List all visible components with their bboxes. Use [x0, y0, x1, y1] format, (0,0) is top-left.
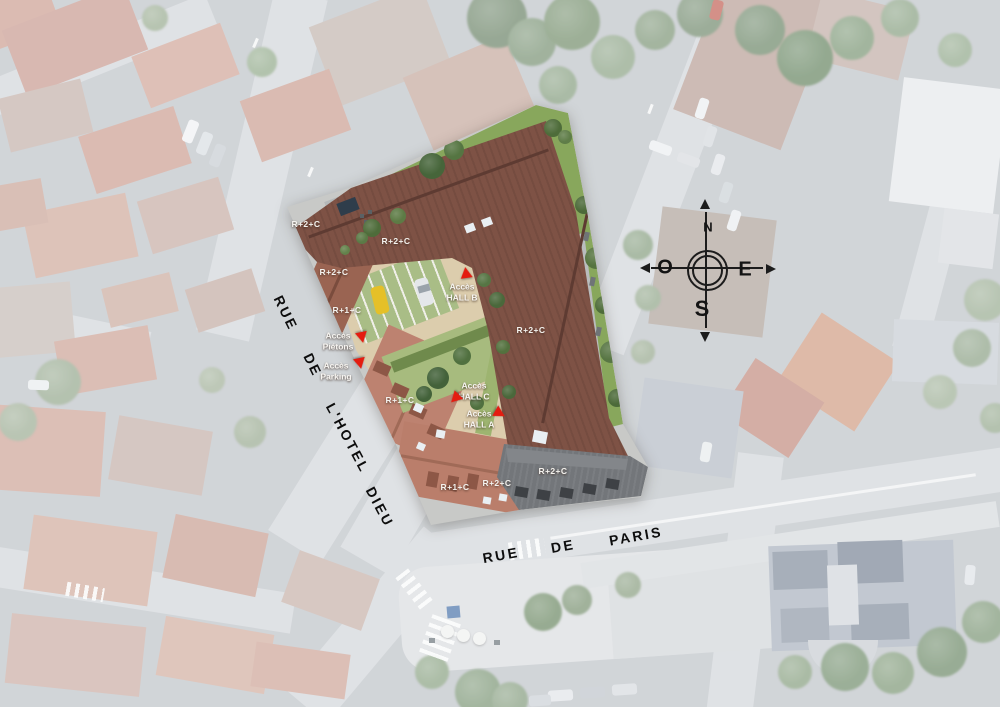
skylight — [464, 222, 476, 233]
compass-north-arrow-icon — [700, 199, 710, 209]
dormer — [465, 473, 478, 490]
site-tree — [416, 386, 432, 402]
site-tree — [489, 292, 505, 308]
site-plan — [0, 0, 1000, 707]
roof-ridge — [541, 161, 599, 424]
site-tree — [419, 153, 445, 179]
aerial-site-plan: RUEDEL'HOTELDIEURUEDEPARISR+2+CR+2+CR+2+… — [0, 0, 1000, 707]
site-tree — [558, 130, 572, 144]
skylight — [498, 493, 507, 501]
canopy — [336, 196, 359, 215]
site-area — [0, 0, 1000, 707]
bench — [589, 276, 596, 286]
skylight — [481, 216, 493, 227]
compass-east-label: E — [738, 259, 751, 282]
site-tree — [340, 245, 350, 255]
dormer — [390, 382, 409, 399]
dormer — [605, 478, 620, 490]
site-tree — [427, 367, 449, 389]
dormer — [582, 483, 597, 495]
site-tree — [496, 340, 510, 354]
site-tree — [390, 208, 406, 224]
site-tree — [608, 389, 626, 407]
dormer — [425, 471, 438, 488]
compass-south-arrow-icon — [700, 332, 710, 342]
compass-west-arrow-icon — [640, 263, 650, 273]
dormer — [559, 487, 574, 499]
dormer — [445, 475, 458, 492]
site-tree — [600, 341, 622, 363]
compass-inner-circle — [692, 255, 723, 286]
compass-west-label: O — [657, 257, 673, 280]
dormer — [372, 360, 391, 377]
site-tree — [575, 196, 593, 214]
compass-south-label: S — [695, 296, 710, 322]
car-yellow — [370, 285, 390, 316]
site-tree — [453, 347, 471, 365]
skylight — [482, 496, 491, 504]
site-tree — [595, 296, 613, 314]
site-detail-layer — [0, 0, 1000, 707]
compass-rose: N O E S — [640, 196, 776, 344]
site-tree — [444, 140, 464, 160]
site-tree — [356, 232, 368, 244]
site-tree — [477, 273, 491, 287]
terrace-table — [360, 214, 364, 218]
bench — [583, 231, 590, 241]
dormer — [514, 486, 529, 498]
skylight — [416, 441, 426, 451]
bench — [595, 326, 602, 336]
compass-east-arrow-icon — [766, 264, 776, 274]
dormer — [536, 489, 551, 501]
skylight — [532, 430, 548, 444]
terrace-table — [368, 210, 372, 214]
skylight — [435, 429, 445, 438]
compass-north-label: N — [703, 220, 712, 235]
site-tree — [502, 385, 516, 399]
site-tree — [470, 396, 484, 410]
site-tree — [585, 247, 607, 269]
